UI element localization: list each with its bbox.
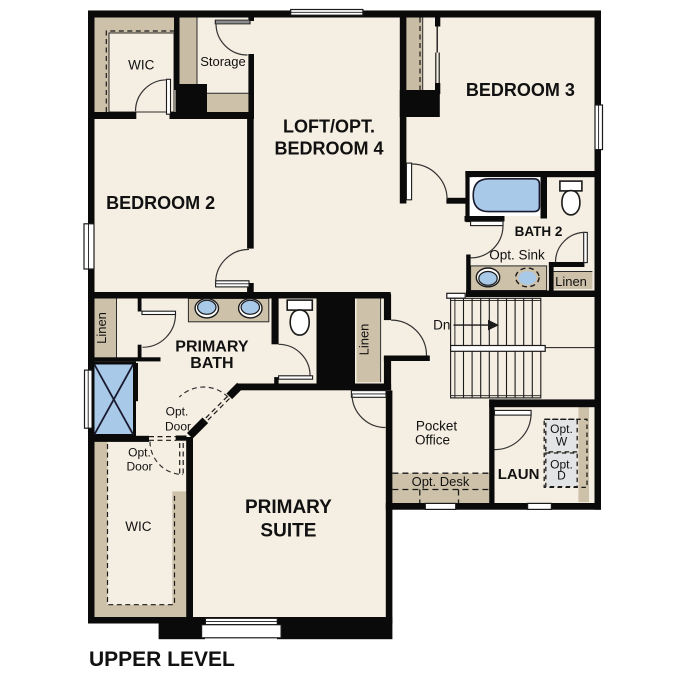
svg-text:Linen: Linen <box>357 324 372 356</box>
svg-text:Linen: Linen <box>94 312 109 344</box>
svg-text:Opt. Sink: Opt. Sink <box>489 248 545 263</box>
svg-text:Opt.: Opt. <box>128 446 151 460</box>
svg-text:PRIMARY: PRIMARY <box>245 497 332 518</box>
svg-text:PRIMARY: PRIMARY <box>175 339 249 356</box>
svg-text:Door: Door <box>126 460 152 474</box>
svg-text:WIC: WIC <box>125 519 151 534</box>
svg-text:Opt.: Opt. <box>166 405 189 419</box>
svg-text:BEDROOM 2: BEDROOM 2 <box>106 193 215 213</box>
svg-text:SUITE: SUITE <box>260 521 316 542</box>
svg-text:Pocket: Pocket <box>416 419 458 434</box>
svg-text:BEDROOM 3: BEDROOM 3 <box>466 80 575 100</box>
svg-text:Door: Door <box>165 420 191 434</box>
svg-text:Opt. Desk: Opt. Desk <box>412 474 470 489</box>
svg-text:Dn: Dn <box>433 318 450 333</box>
svg-text:LAUN: LAUN <box>498 466 540 483</box>
svg-text:BATH: BATH <box>190 355 233 372</box>
svg-text:Storage: Storage <box>200 54 246 69</box>
svg-text:W: W <box>556 435 568 449</box>
svg-text:LOFT/OPT.: LOFT/OPT. <box>283 117 375 137</box>
svg-text:Linen: Linen <box>555 274 587 289</box>
svg-text:BEDROOM 4: BEDROOM 4 <box>274 139 383 159</box>
svg-text:D: D <box>557 469 566 483</box>
svg-text:UPPER LEVEL: UPPER LEVEL <box>89 648 235 671</box>
svg-text:WIC: WIC <box>128 58 154 73</box>
svg-text:Office: Office <box>415 433 450 448</box>
svg-text:BATH 2: BATH 2 <box>515 224 563 239</box>
